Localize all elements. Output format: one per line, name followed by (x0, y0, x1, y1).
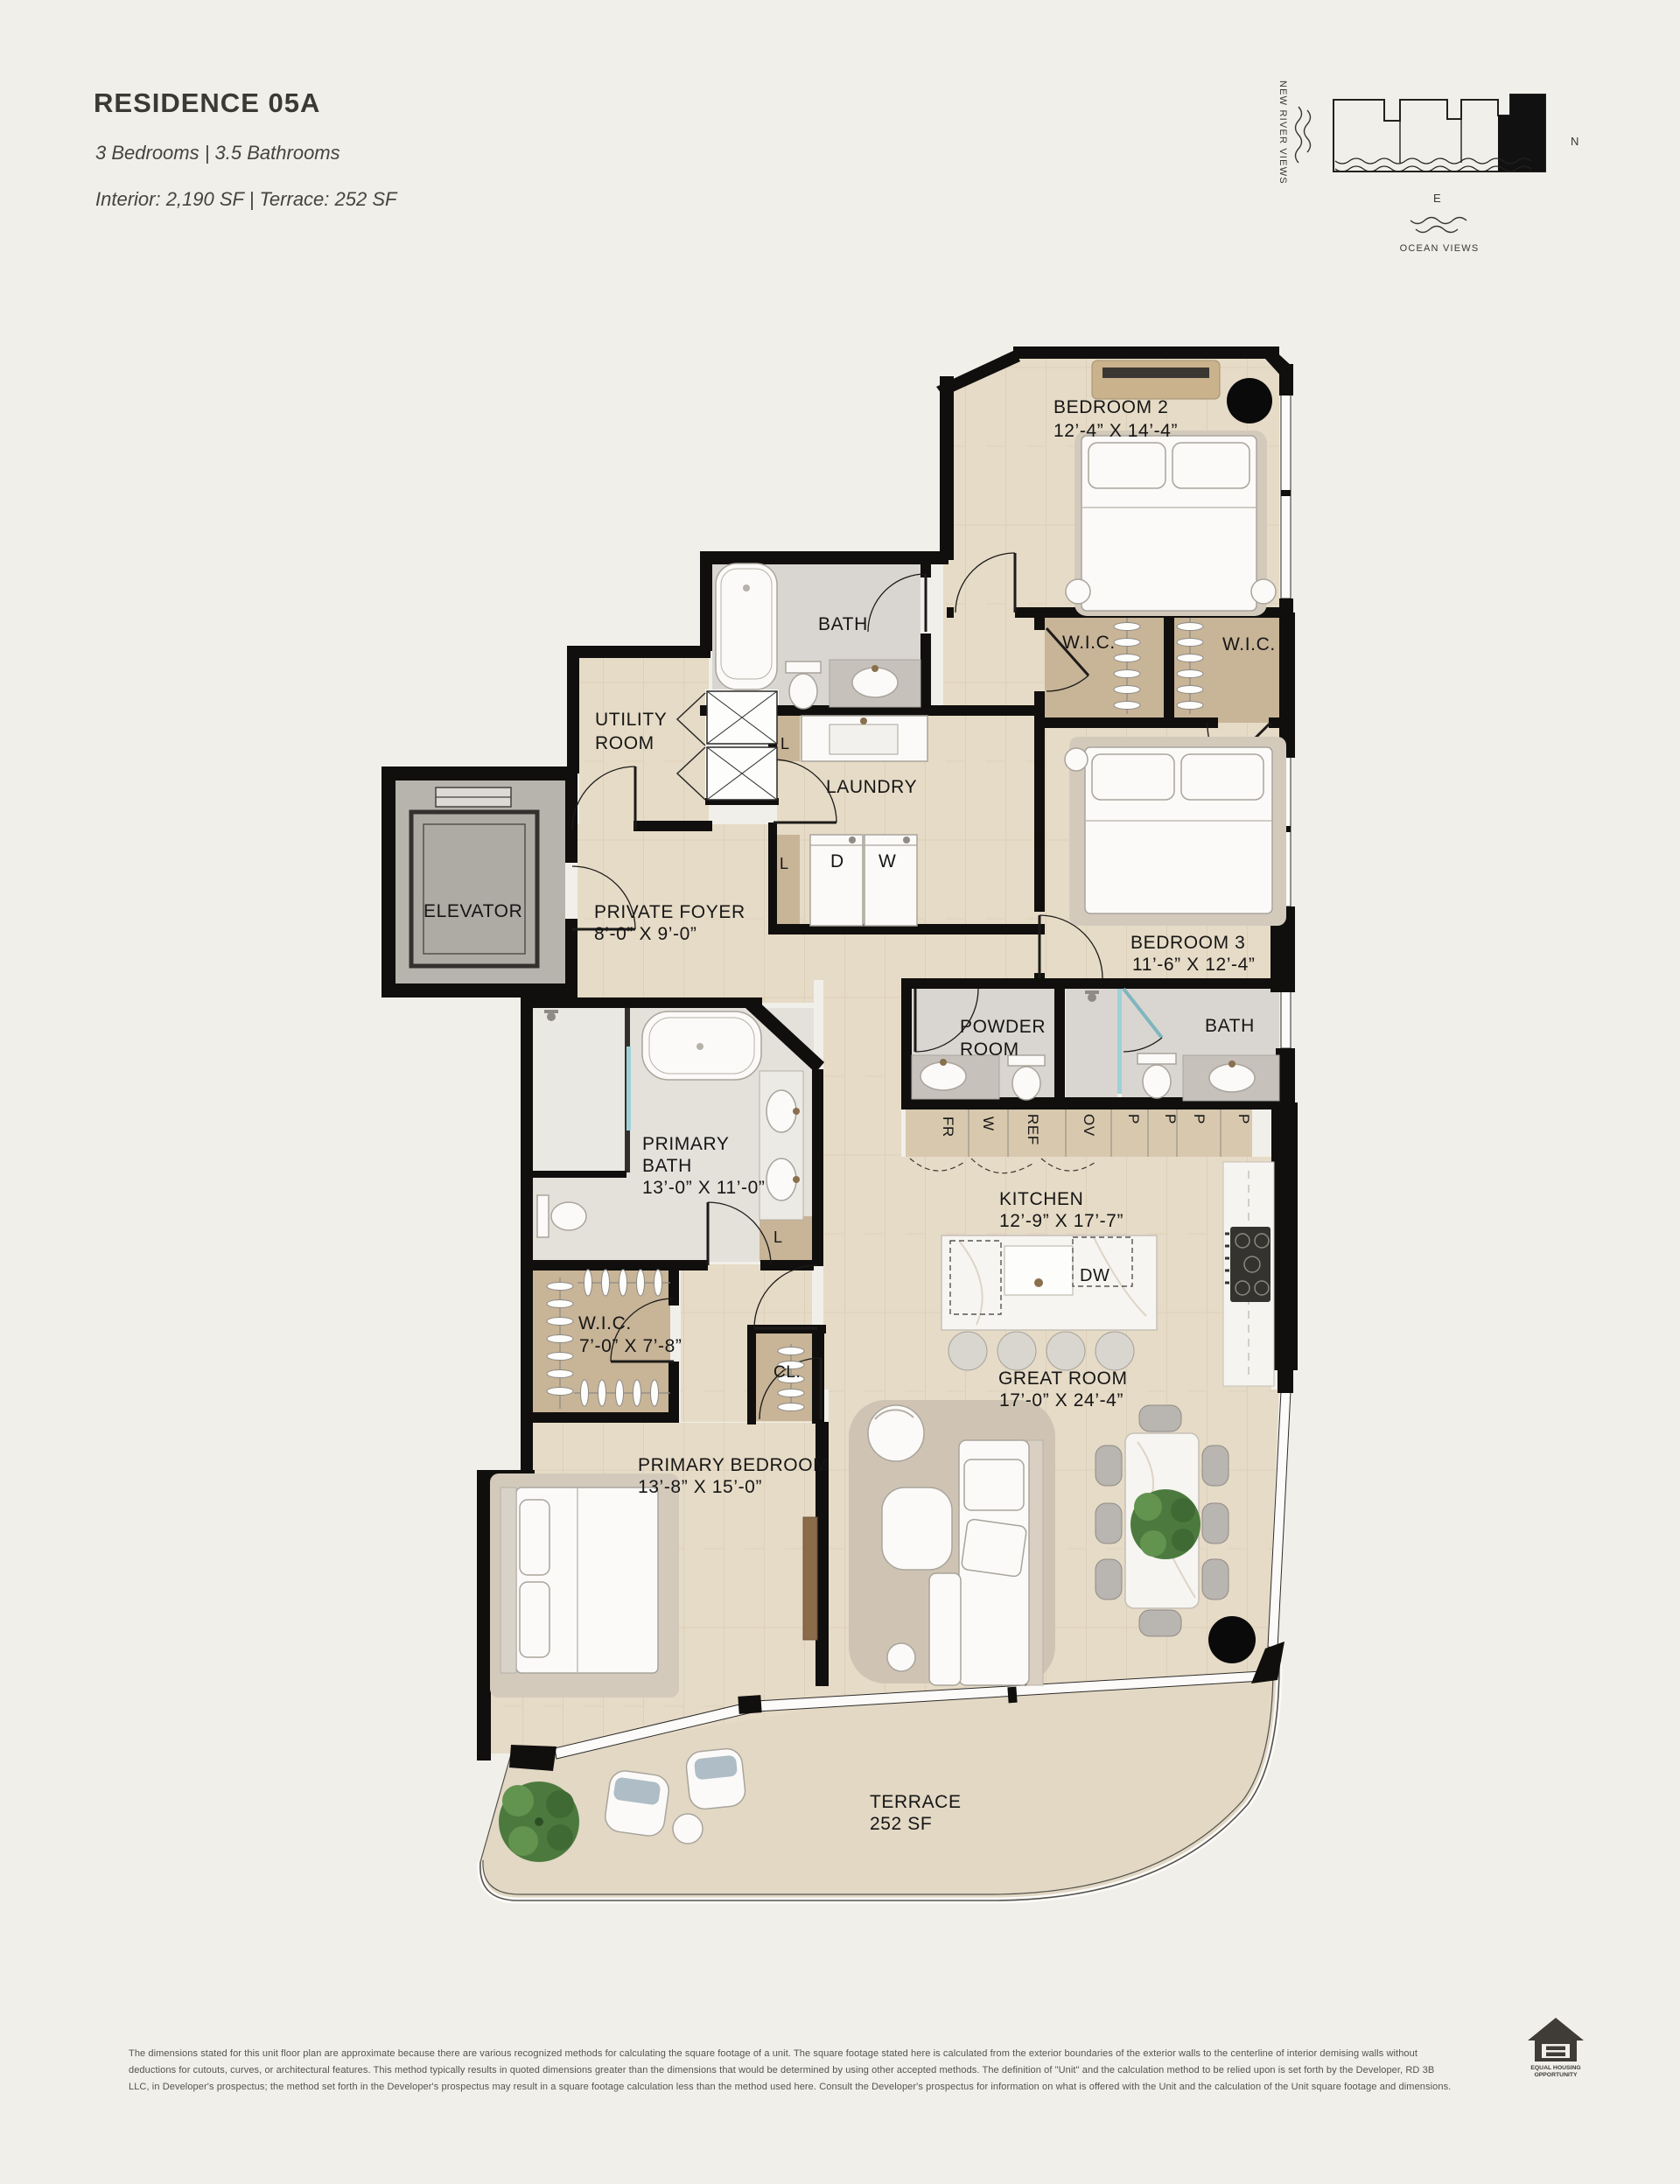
plan-label: 13’-8” X 15’-0” (638, 1477, 762, 1497)
plan-label: P (1125, 1114, 1142, 1124)
river-waves-icon (1296, 107, 1302, 163)
floor-plan: BEDROOM 212’-4” X 14’-4”W.I.C.W.I.C.BATH… (381, 346, 1298, 1900)
bath2-toilet (786, 661, 821, 673)
plan-label: KITCHEN (999, 1189, 1083, 1209)
plan-label: CL. (773, 1363, 801, 1382)
equal-housing-logo: EQUAL HOUSING OPPORTUNITY (1528, 2018, 1584, 2078)
key-plan-building-icon (1333, 94, 1545, 171)
linen-2 (773, 835, 800, 926)
gallery (823, 980, 901, 1157)
plan-label: BATH (642, 1156, 692, 1176)
bath3-toilet (1137, 1053, 1176, 1064)
plan-label: W (980, 1116, 997, 1131)
plan-label: GREAT ROOM (998, 1368, 1128, 1389)
plan-label: 13’-0” X 11’-0” (642, 1178, 766, 1198)
elevator (395, 780, 565, 983)
plan-label: OV (1081, 1114, 1097, 1137)
plan-label: W.I.C. (1222, 634, 1276, 654)
plan-label: W (878, 851, 896, 871)
bed2-console (1092, 360, 1220, 399)
plan-label: L (780, 855, 789, 872)
dryer (810, 835, 863, 926)
terrace-table (673, 1814, 703, 1844)
plan-label: 7’-0” X 7’-8” (579, 1336, 682, 1356)
disclaimer-line: The dimensions stated for this unit floo… (129, 2046, 1451, 2062)
island-sink (1004, 1246, 1073, 1295)
plan-label: BEDROOM 3 (1130, 933, 1245, 953)
plan-label: POWDER (960, 1017, 1046, 1037)
plan-label: 12’-4” X 14’-4” (1053, 421, 1178, 441)
plan-label: P (1191, 1114, 1207, 1124)
north-label: N (1571, 135, 1580, 148)
side-table (887, 1643, 915, 1671)
logo-text-line2: OPPORTUNITY (1534, 2072, 1578, 2078)
elevator-car (411, 812, 537, 966)
plan-label: PRIMARY BEDROOM (638, 1455, 829, 1475)
column (1208, 1616, 1256, 1663)
plan-label: L (773, 1228, 783, 1246)
floor-plan-svg: NEW RIVER VIEWS N E OCEAN VIEWS (0, 0, 1680, 2184)
bath2-tub (716, 563, 777, 689)
unit-05a-highlight (1498, 94, 1545, 171)
ocean-waves-icon (1410, 218, 1466, 233)
east-label: E (1433, 192, 1442, 205)
armchair (868, 1405, 924, 1461)
plan-label: REF (1025, 1114, 1041, 1145)
river-waves-icon (1305, 110, 1311, 152)
plan-label: ROOM (960, 1039, 1019, 1060)
shower-glass (626, 1046, 631, 1130)
plan-label: BATH (818, 614, 868, 634)
disclaimer-line: LLC, in Developer's prospectus; the meth… (129, 2079, 1451, 2096)
plan-label: 11’-6” X 12’-4” (1132, 955, 1256, 975)
coffee-table (882, 1487, 952, 1570)
plan-label: DW (1080, 1266, 1110, 1285)
primary-toilet (537, 1195, 549, 1237)
plan-label: TERRACE (870, 1792, 962, 1812)
plan-label: 17’-0” X 24’-4” (999, 1390, 1123, 1410)
plan-label: D (830, 851, 844, 871)
linen-primary (759, 1216, 814, 1262)
tv-console (803, 1517, 817, 1640)
plan-label: 8’-0” X 9’-0” (594, 924, 697, 944)
plan-label: ROOM (595, 733, 654, 753)
plan-label: ELEVATOR (423, 901, 522, 921)
plan-label: P (1235, 1114, 1252, 1124)
ocean-views-label: OCEAN VIEWS (1400, 243, 1480, 254)
plan-label: W.I.C. (578, 1313, 632, 1333)
plan-label: LAUNDRY (826, 777, 917, 797)
plan-label: P (1162, 1114, 1179, 1124)
key-plan-river-label: NEW RIVER VIEWS (1277, 80, 1288, 185)
disclaimer: The dimensions stated for this unit floo… (129, 2046, 1451, 2096)
disclaimer-line: deductions for cutouts, curves, or archi… (129, 2062, 1451, 2079)
plan-label: PRIVATE FOYER (594, 902, 745, 922)
floor-plan-page: { "header": { "title": "RESIDENCE 05A", … (0, 0, 1680, 2184)
plan-label: UTILITY (595, 710, 667, 730)
plan-label: W.I.C. (1062, 633, 1116, 653)
logo-text-line1: EQUAL HOUSING (1530, 2065, 1580, 2071)
plan-label: 12’-9” X 17’-7” (999, 1211, 1123, 1231)
plan-label: L (780, 735, 790, 752)
primary-shower (533, 1008, 626, 1171)
dining-plant (1130, 1489, 1200, 1559)
column (1227, 378, 1272, 423)
plan-label: BEDROOM 2 (1053, 397, 1168, 417)
key-plan: NEW RIVER VIEWS N E OCEAN VIEWS (1277, 80, 1580, 254)
washer (864, 835, 917, 926)
terrace-plant (499, 1781, 579, 1862)
plan-label: BATH (1205, 1016, 1255, 1036)
plan-label: 252 SF (870, 1814, 932, 1834)
bath3-glass (1117, 989, 1122, 1094)
plan-label: PRIMARY (642, 1134, 730, 1154)
plan-label: FR (940, 1116, 956, 1137)
shower-bath-3 (1066, 989, 1117, 1099)
